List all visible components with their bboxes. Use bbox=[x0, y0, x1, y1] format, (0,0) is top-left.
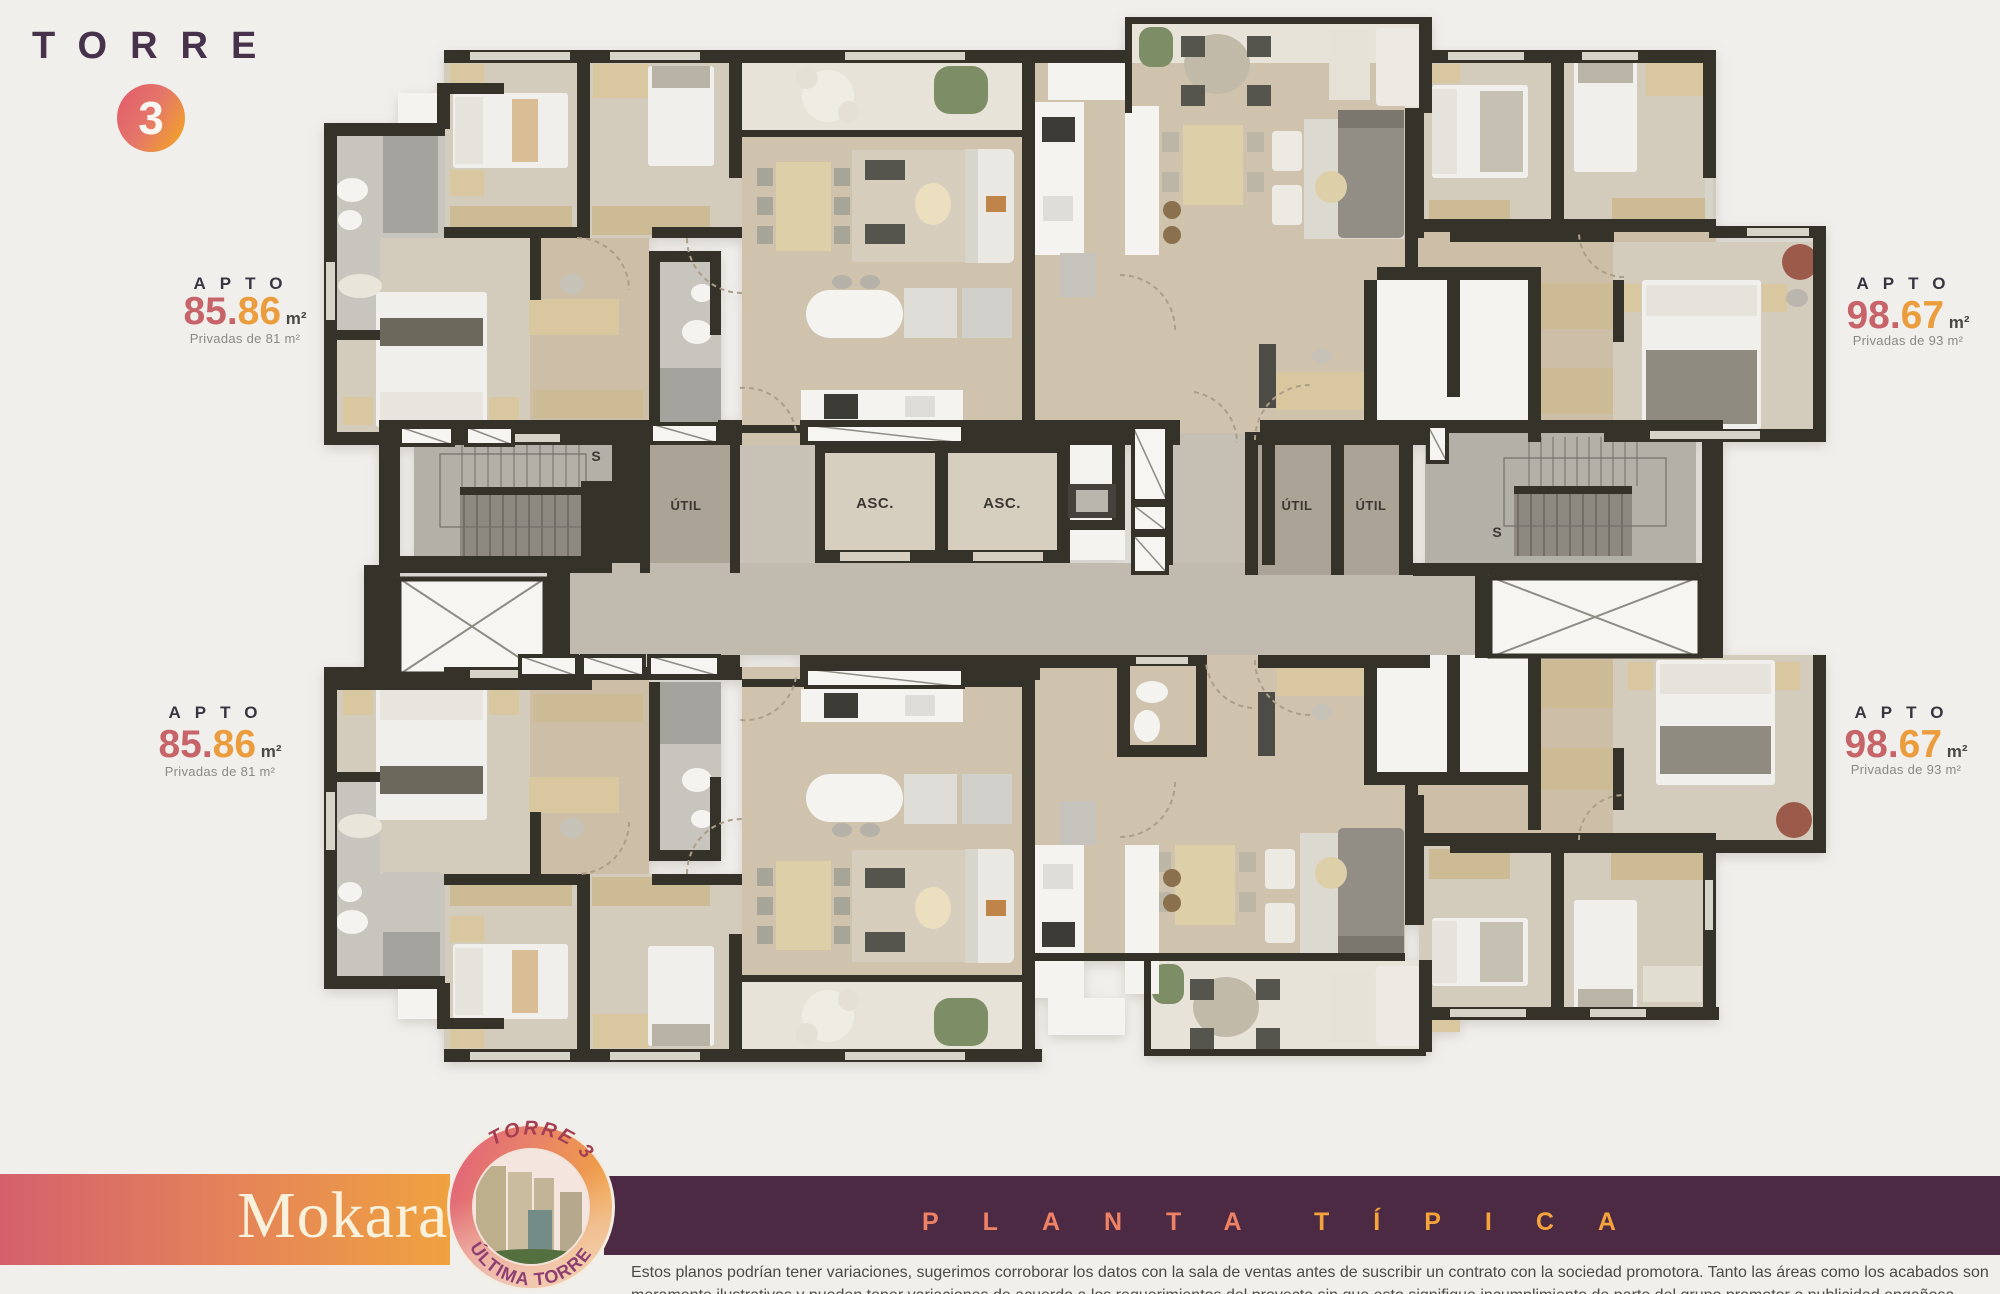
svg-text:S: S bbox=[1492, 524, 1501, 540]
svg-text:PLANTA: PLANTA bbox=[922, 1208, 1286, 1236]
svg-text:3: 3 bbox=[138, 92, 164, 144]
svg-text:meramente ilustrativos y puede: meramente ilustrativos y pueden tener va… bbox=[631, 1287, 1959, 1294]
svg-text:ASC.: ASC. bbox=[856, 495, 894, 512]
svg-text:APTO: APTO bbox=[1855, 703, 1958, 722]
svg-text:Privadas de 81 m²: Privadas de 81 m² bbox=[190, 331, 301, 346]
svg-text:Mokara: Mokara bbox=[237, 1179, 448, 1252]
svg-text:ÚTIL: ÚTIL bbox=[1282, 498, 1313, 513]
svg-text:ÚTIL: ÚTIL bbox=[1356, 498, 1387, 513]
svg-text:APTO: APTO bbox=[1857, 274, 1960, 293]
svg-text:Privadas de 93 m²: Privadas de 93 m² bbox=[1853, 333, 1964, 348]
svg-text:Estos planos podrían tener var: Estos planos podrían tener variaciones, … bbox=[631, 1264, 1989, 1281]
svg-text:Privadas de 81 m²: Privadas de 81 m² bbox=[165, 764, 276, 779]
svg-text:ÚTIL: ÚTIL bbox=[671, 498, 702, 513]
svg-text:Privadas de 93 m²: Privadas de 93 m² bbox=[1851, 762, 1962, 777]
svg-text:TÍPICA: TÍPICA bbox=[1314, 1207, 1660, 1236]
svg-text:ASC.: ASC. bbox=[983, 495, 1021, 512]
svg-text:APTO: APTO bbox=[169, 703, 272, 722]
svg-text:S: S bbox=[591, 448, 600, 464]
svg-text:TORRE: TORRE bbox=[32, 25, 279, 67]
